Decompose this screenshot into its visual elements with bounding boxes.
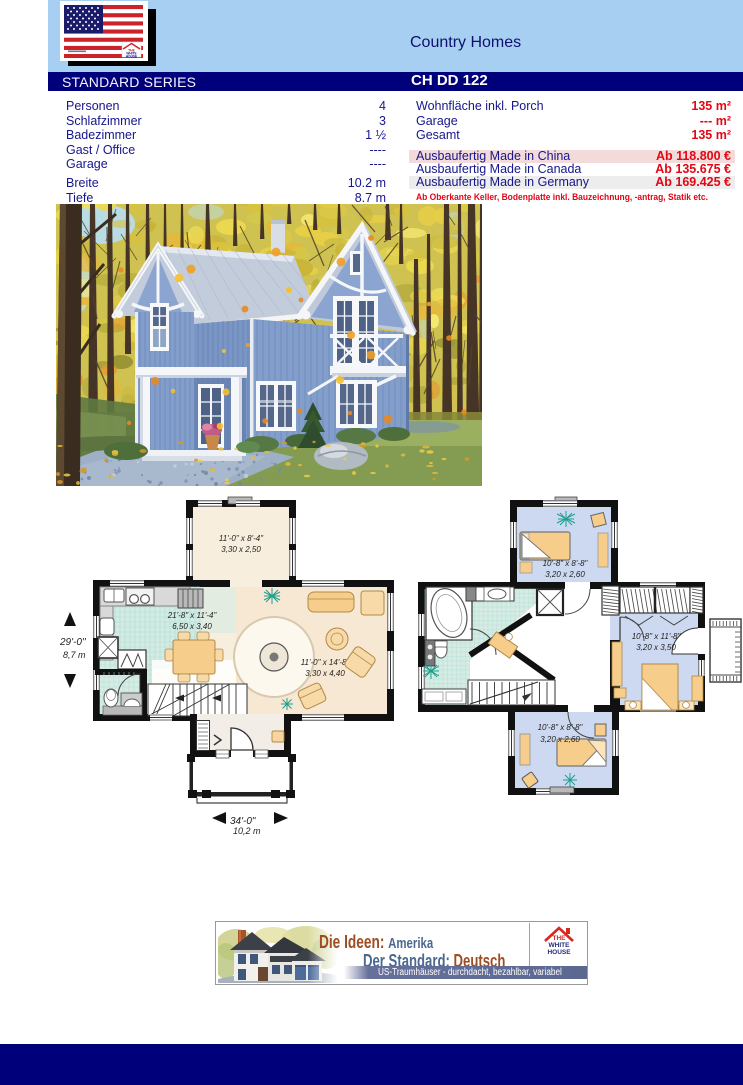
svg-text:3,20 x 2,60: 3,20 x 2,60 bbox=[540, 735, 580, 744]
svg-text:THE: THE bbox=[553, 935, 567, 942]
svg-text:11'-0" x 8'-4": 11'-0" x 8'-4" bbox=[219, 534, 264, 543]
svg-text:10'-8" x 11'-8": 10'-8" x 11'-8" bbox=[632, 632, 682, 641]
svg-text:11'-0" x 14'-8": 11'-0" x 14'-8" bbox=[301, 658, 351, 667]
svg-text:10'-8" x 8'-8": 10'-8" x 8'-8" bbox=[538, 723, 584, 732]
svg-text:10,2 m: 10,2 m bbox=[233, 826, 261, 836]
svg-text:3,20 x 2,60: 3,20 x 2,60 bbox=[545, 570, 585, 579]
svg-text:HOUSE: HOUSE bbox=[547, 949, 571, 956]
svg-text:3,20 x 3,50: 3,20 x 3,50 bbox=[636, 643, 676, 652]
svg-text:29'-0'': 29'-0'' bbox=[59, 637, 87, 648]
svg-text:6,50 x 3,40: 6,50 x 3,40 bbox=[172, 622, 212, 631]
svg-text:10'-8" x 8'-8": 10'-8" x 8'-8" bbox=[543, 559, 589, 568]
svg-text:HOUSE: HOUSE bbox=[126, 55, 137, 59]
svg-text:21'-8" x 11'-4": 21'-8" x 11'-4" bbox=[167, 611, 218, 620]
svg-text:WHITE: WHITE bbox=[549, 942, 571, 949]
svg-text:3,30 x 2,50: 3,30 x 2,50 bbox=[221, 545, 261, 554]
svg-text:8,7 m: 8,7 m bbox=[63, 650, 86, 660]
svg-text:3,30 x 4,40: 3,30 x 4,40 bbox=[305, 669, 345, 678]
